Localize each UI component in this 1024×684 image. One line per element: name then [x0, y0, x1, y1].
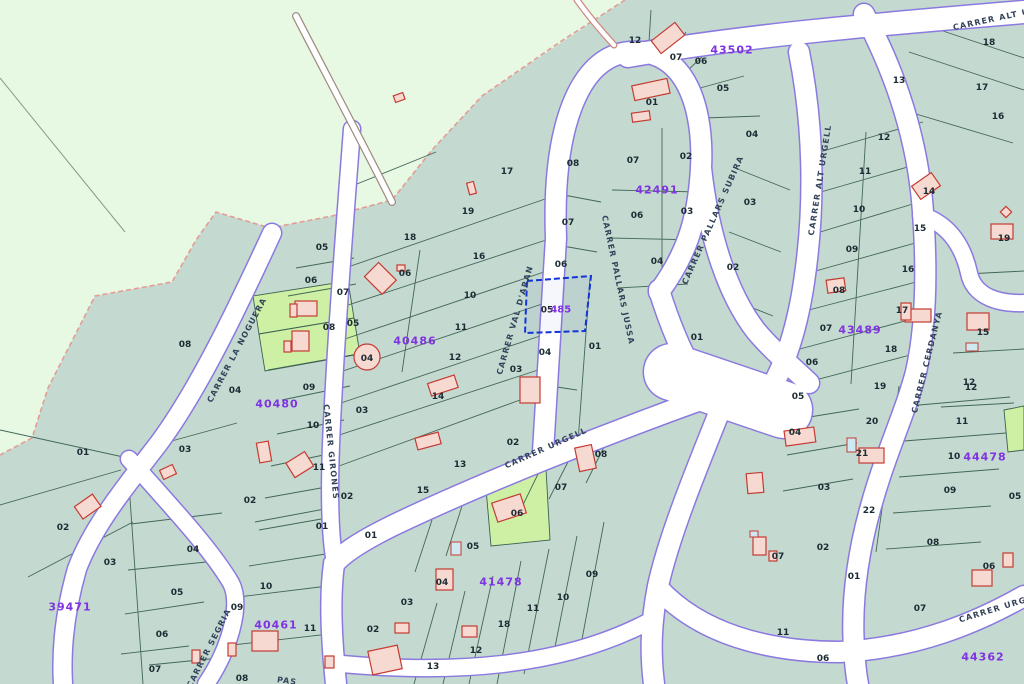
urban-area	[0, 0, 1024, 684]
selected-parcel[interactable]	[525, 276, 591, 333]
cadastral-map-viewport[interactable]: 05485 1207060504020107060304020301080706…	[0, 0, 1024, 684]
field-line	[0, 78, 125, 232]
map-graphics	[0, 0, 1024, 684]
